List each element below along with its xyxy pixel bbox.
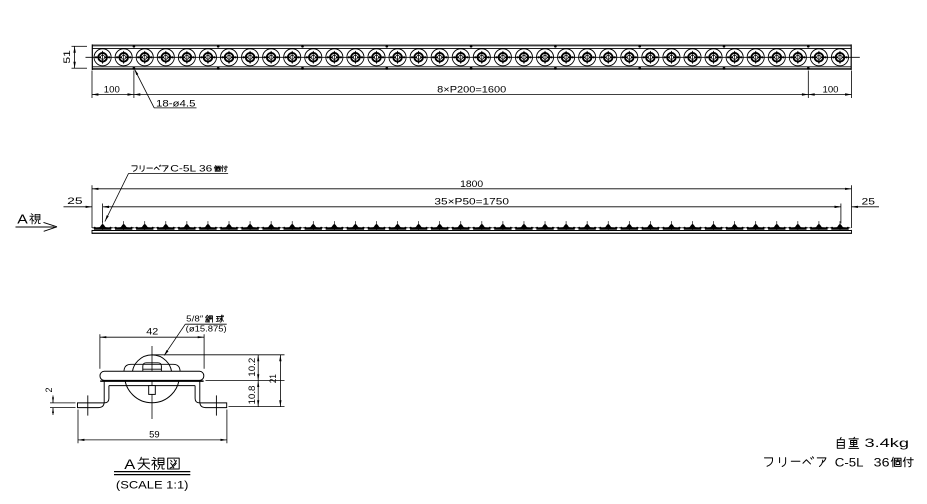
svg-text:10.2: 10.2 (247, 358, 257, 377)
svg-text:A: A (17, 213, 28, 227)
svg-text:A: A (124, 456, 136, 472)
svg-text:2: 2 (44, 388, 54, 393)
svg-text:18-ø4.5: 18-ø4.5 (156, 98, 196, 108)
svg-text:8×P200=1600: 8×P200=1600 (437, 85, 506, 96)
svg-text:25: 25 (67, 196, 83, 207)
svg-text:100: 100 (104, 85, 120, 96)
svg-text:(SCALE 1:1): (SCALE 1:1) (116, 480, 189, 492)
svg-text:21: 21 (268, 374, 278, 383)
svg-text:C-5L 36: C-5L 36 (170, 163, 212, 173)
svg-text:42: 42 (146, 327, 158, 337)
svg-text:100: 100 (823, 85, 839, 96)
svg-text:51: 51 (62, 50, 73, 64)
svg-text:3.4kg: 3.4kg (865, 436, 910, 450)
svg-text:36: 36 (874, 456, 890, 470)
svg-text:10.8: 10.8 (247, 386, 257, 405)
svg-text:(ø15.875): (ø15.875) (186, 325, 227, 334)
svg-text:1800: 1800 (460, 179, 483, 190)
svg-text:C-5L: C-5L (835, 456, 864, 470)
svg-text:25: 25 (862, 196, 876, 207)
svg-text:5/8″: 5/8″ (186, 315, 203, 324)
svg-text:35×P50=1750: 35×P50=1750 (434, 196, 509, 207)
svg-text:59: 59 (149, 430, 160, 440)
